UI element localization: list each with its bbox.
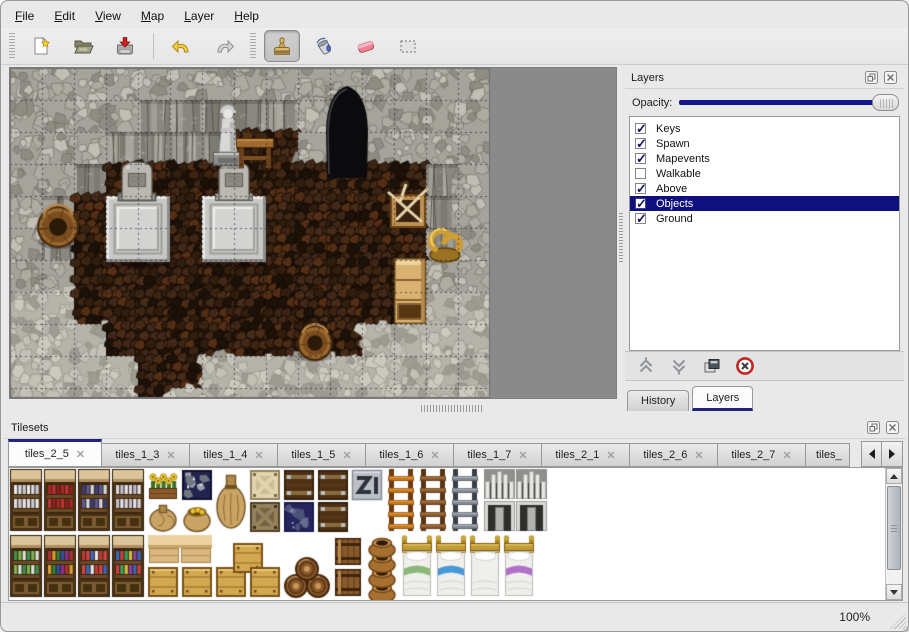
open-map-button[interactable] (65, 30, 101, 62)
dock-tab-history[interactable]: History (627, 390, 689, 411)
dock-tab-bar: HistoryLayers (627, 385, 756, 411)
menu-bar: FileEditViewMapLayerHelp (5, 4, 904, 27)
scroll-tabs-right-button[interactable] (882, 441, 903, 467)
layer-row-ground[interactable]: Ground (630, 211, 899, 226)
layer-visibility-checkbox[interactable] (635, 198, 646, 209)
arrow-left-icon (869, 449, 875, 459)
duplicate-icon (702, 356, 722, 376)
open-folder-icon (72, 35, 94, 57)
layer-row-spawn[interactable]: Spawn (630, 136, 899, 151)
dock-tab-layers[interactable]: Layers (692, 386, 753, 411)
delete-icon (735, 356, 755, 376)
tileset-scrollbar[interactable] (885, 468, 902, 600)
tileset-tab-tiles_1_3[interactable]: tiles_1_3✕ (102, 443, 190, 467)
layer-visibility-checkbox[interactable] (635, 183, 646, 194)
close-panel-icon[interactable] (885, 420, 900, 435)
move-up-icon (636, 356, 656, 376)
close-panel-icon[interactable] (883, 70, 898, 85)
layer-label: Spawn (656, 138, 690, 150)
duplicate-layer-button[interactable] (700, 354, 724, 378)
move-down-layer-button[interactable] (667, 354, 691, 378)
tilesets-panel-titlebar: Tilesets (5, 417, 906, 439)
tileset-tab-tiles_1_7[interactable]: tiles_1_7✕ (454, 443, 542, 467)
tab-label: tiles_2_6 (643, 449, 687, 461)
tab-label: tiles_1_3 (115, 449, 159, 461)
status-bar: 100% (1, 602, 908, 631)
tileset-tab-tiles_2_5[interactable]: tiles_2_5✕ (8, 439, 102, 467)
layer-row-keys[interactable]: Keys (630, 121, 899, 136)
tab-scroll-buttons (861, 441, 903, 467)
scroll-tabs-left-button[interactable] (861, 441, 882, 467)
layer-visibility-checkbox[interactable] (635, 138, 646, 149)
menu-help[interactable]: Help (224, 6, 269, 26)
new-map-button[interactable] (23, 30, 59, 62)
scroll-up-button[interactable] (886, 468, 902, 484)
tab-label: tiles_2_5 (25, 448, 69, 460)
layers-panel: Layers Opacity: KeysSpawnMapeventsWalkab… (625, 67, 904, 411)
scrollbar-thumb[interactable] (887, 486, 901, 570)
opacity-slider-track[interactable] (679, 100, 897, 105)
move-down-icon (669, 356, 689, 376)
tileset-view (8, 467, 903, 601)
arrow-down-icon (890, 590, 898, 595)
scroll-down-button[interactable] (886, 584, 902, 600)
layer-label: Above (656, 183, 687, 195)
tilesets-panel-title: Tilesets (11, 422, 49, 434)
tab-label: tiles_2_7 (731, 449, 775, 461)
save-icon (114, 35, 136, 57)
layer-label: Objects (656, 198, 693, 210)
float-panel-icon[interactable] (864, 70, 879, 85)
fill-tool-icon (313, 35, 335, 57)
tileset-tab-tiles_1_4[interactable]: tiles_1_4✕ (190, 443, 278, 467)
opacity-slider-handle[interactable] (872, 94, 899, 111)
layer-visibility-checkbox[interactable] (635, 153, 646, 164)
layers-panel-title: Layers (631, 72, 664, 84)
arrow-right-icon (889, 449, 895, 459)
layer-row-walkable[interactable]: Walkable (630, 166, 899, 181)
tab-label: tiles_ (816, 449, 842, 461)
select-tool-button[interactable] (390, 30, 426, 62)
arrow-up-icon (890, 474, 898, 479)
close-tab-icon[interactable]: ✕ (430, 449, 439, 462)
layer-row-mapevents[interactable]: Mapevents (630, 151, 899, 166)
layer-visibility-checkbox[interactable] (635, 213, 646, 224)
layer-row-above[interactable]: Above (630, 181, 899, 196)
close-tab-icon[interactable]: ✕ (342, 449, 351, 462)
tileset-tab-tiles_2_6[interactable]: tiles_2_6✕ (630, 443, 718, 467)
tileset-tab-tiles_1_5[interactable]: tiles_1_5✕ (278, 443, 366, 467)
app-window: FileEditViewMapLayerHelp Layers Opacity:… (0, 0, 909, 632)
tab-label: tiles_1_4 (203, 449, 247, 461)
tileset-tab-bar: tiles_2_5✕tiles_1_3✕tiles_1_4✕tiles_1_5✕… (8, 439, 903, 467)
tab-label: tiles_2_1 (555, 449, 599, 461)
horizontal-splitter[interactable] (421, 405, 483, 412)
toolbar-grip[interactable] (9, 33, 15, 59)
undo-icon (171, 35, 193, 57)
redo-button[interactable] (206, 30, 242, 62)
menu-view[interactable]: View (85, 6, 131, 26)
map-canvas[interactable] (10, 68, 616, 398)
undo-button[interactable] (164, 30, 200, 62)
tab-label: tiles_1_6 (379, 449, 423, 461)
move-up-layer-button[interactable] (634, 354, 658, 378)
zoom-level: 100% (839, 610, 870, 624)
vertical-splitter[interactable] (617, 67, 625, 399)
toolbar (1, 28, 908, 65)
new-file-icon (30, 35, 52, 57)
stamp-tool-icon (271, 35, 293, 57)
splitter-grip-icon (619, 213, 623, 263)
layer-actions (625, 351, 904, 381)
menu-map[interactable]: Map (131, 6, 174, 26)
layer-visibility-checkbox[interactable] (635, 123, 646, 134)
layer-label: Walkable (656, 168, 701, 180)
map-view (9, 67, 617, 399)
fill-tool-button[interactable] (306, 30, 342, 62)
menu-file[interactable]: File (5, 6, 44, 26)
toolbar-grip[interactable] (250, 33, 256, 59)
opacity-row: Opacity: (632, 92, 899, 113)
tileset-tab-tiles_[interactable]: tiles_ (806, 443, 850, 467)
layer-label: Mapevents (656, 153, 710, 165)
save-map-button[interactable] (107, 30, 143, 62)
tileset-tab-tiles_1_6[interactable]: tiles_1_6✕ (366, 443, 454, 467)
stamp-tool-button[interactable] (264, 30, 300, 62)
close-tab-icon[interactable]: ✕ (254, 449, 263, 462)
toolbar-separator (153, 33, 154, 59)
layer-row-objects[interactable]: Objects (630, 196, 899, 211)
layer-visibility-checkbox[interactable] (635, 168, 646, 179)
close-tab-icon[interactable]: ✕ (76, 448, 85, 461)
menu-edit[interactable]: Edit (44, 6, 85, 26)
close-tab-icon[interactable]: ✕ (606, 449, 615, 462)
layer-label: Ground (656, 213, 693, 225)
close-tab-icon[interactable]: ✕ (782, 449, 791, 462)
tab-label: tiles_1_7 (467, 449, 511, 461)
tab-label: tiles_1_5 (291, 449, 335, 461)
select-tool-icon (397, 35, 419, 57)
tileset-canvas[interactable] (9, 468, 889, 600)
close-tab-icon[interactable]: ✕ (694, 449, 703, 462)
opacity-label: Opacity: (632, 97, 672, 109)
tilesets-panel: Tilesets tiles_2_5✕tiles_1_3✕tiles_1_4✕t… (5, 417, 906, 603)
close-tab-icon[interactable]: ✕ (166, 449, 175, 462)
redo-icon (213, 35, 235, 57)
eraser-tool-button[interactable] (348, 30, 384, 62)
opacity-slider[interactable] (679, 94, 899, 111)
layer-list: KeysSpawnMapeventsWalkableAboveObjectsGr… (629, 116, 900, 351)
close-tab-icon[interactable]: ✕ (518, 449, 527, 462)
float-panel-icon[interactable] (866, 420, 881, 435)
menu-layer[interactable]: Layer (174, 6, 224, 26)
delete-layer-button[interactable] (733, 354, 757, 378)
tileset-tab-tiles_2_1[interactable]: tiles_2_1✕ (542, 443, 630, 467)
layer-label: Keys (656, 123, 680, 135)
eraser-tool-icon (355, 35, 377, 57)
layers-panel-titlebar: Layers (625, 67, 904, 89)
tileset-tab-tiles_2_7[interactable]: tiles_2_7✕ (718, 443, 806, 467)
